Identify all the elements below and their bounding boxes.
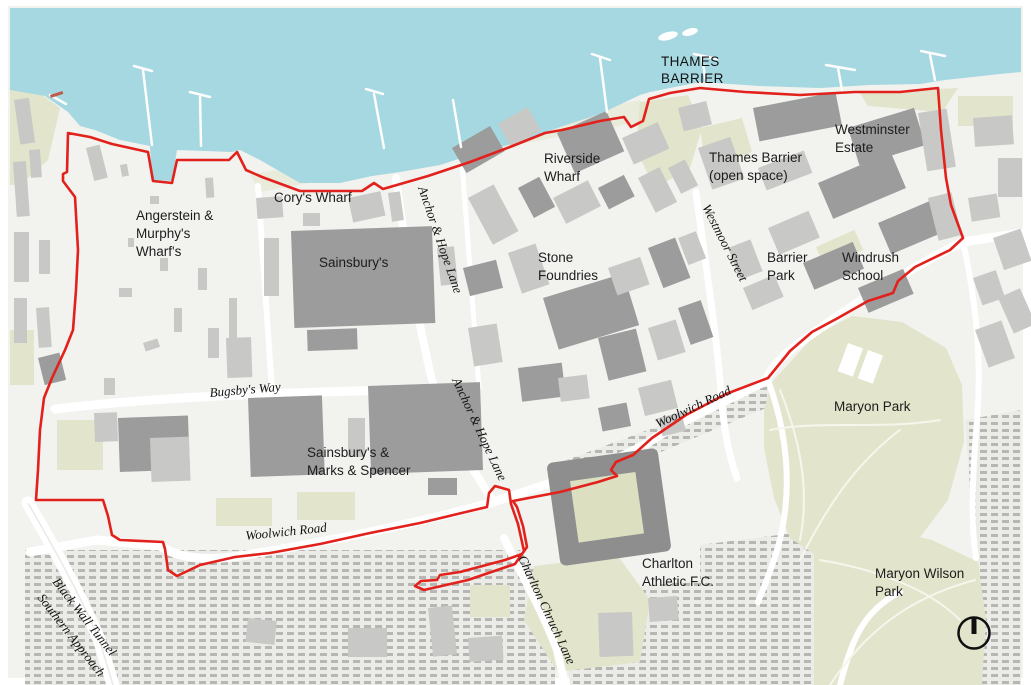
label-sainsburys-ms: Marks & Spencer — [307, 463, 411, 478]
label-barrier-park: Park — [767, 268, 795, 283]
charlton-riverside-map: THAMES BARRIER Westminster Estate Rivers… — [0, 0, 1031, 685]
label-angerstein-wharf: Murphy's — [136, 226, 191, 241]
label-barrier-park: Barrier — [767, 250, 808, 265]
label-angerstein-wharf: Angerstein & — [136, 208, 213, 223]
label-windrush-school: School — [842, 268, 883, 283]
charlton-stadium — [546, 448, 671, 567]
label-stone-foundries: Stone — [538, 250, 573, 265]
label-thames-barrier-open-space: Thames Barrier — [709, 150, 803, 165]
label-angerstein-wharf: Wharf's — [136, 244, 182, 259]
label-corys-wharf: Cory's Wharf — [274, 190, 352, 205]
label-westminster-estate: Estate — [835, 140, 873, 155]
label-sainsburys: Sainsbury's — [319, 255, 389, 270]
label-riverside-wharf: Wharf — [544, 169, 580, 184]
label-thames-barrier: THAMES — [661, 54, 720, 69]
label-maryon-wilson-park: Park — [875, 584, 903, 599]
label-thames-barrier-open-space: (open space) — [709, 168, 788, 183]
label-maryon-park: Maryon Park — [834, 399, 911, 414]
map-page: THAMES BARRIER Westminster Estate Rivers… — [0, 0, 1031, 685]
label-charlton-athletic: Athletic F.C. — [642, 574, 714, 589]
label-westminster-estate: Westminster — [835, 122, 910, 137]
label-sainsburys-ms: Sainsbury's & — [307, 445, 389, 460]
label-riverside-wharf: Riverside — [544, 151, 600, 166]
label-charlton-athletic: Charlton — [642, 556, 693, 571]
label-maryon-wilson-park: Maryon Wilson — [875, 566, 964, 581]
label-thames-barrier: BARRIER — [661, 71, 724, 86]
label-windrush-school: Windrush — [842, 250, 899, 265]
label-stone-foundries: Foundries — [538, 268, 598, 283]
